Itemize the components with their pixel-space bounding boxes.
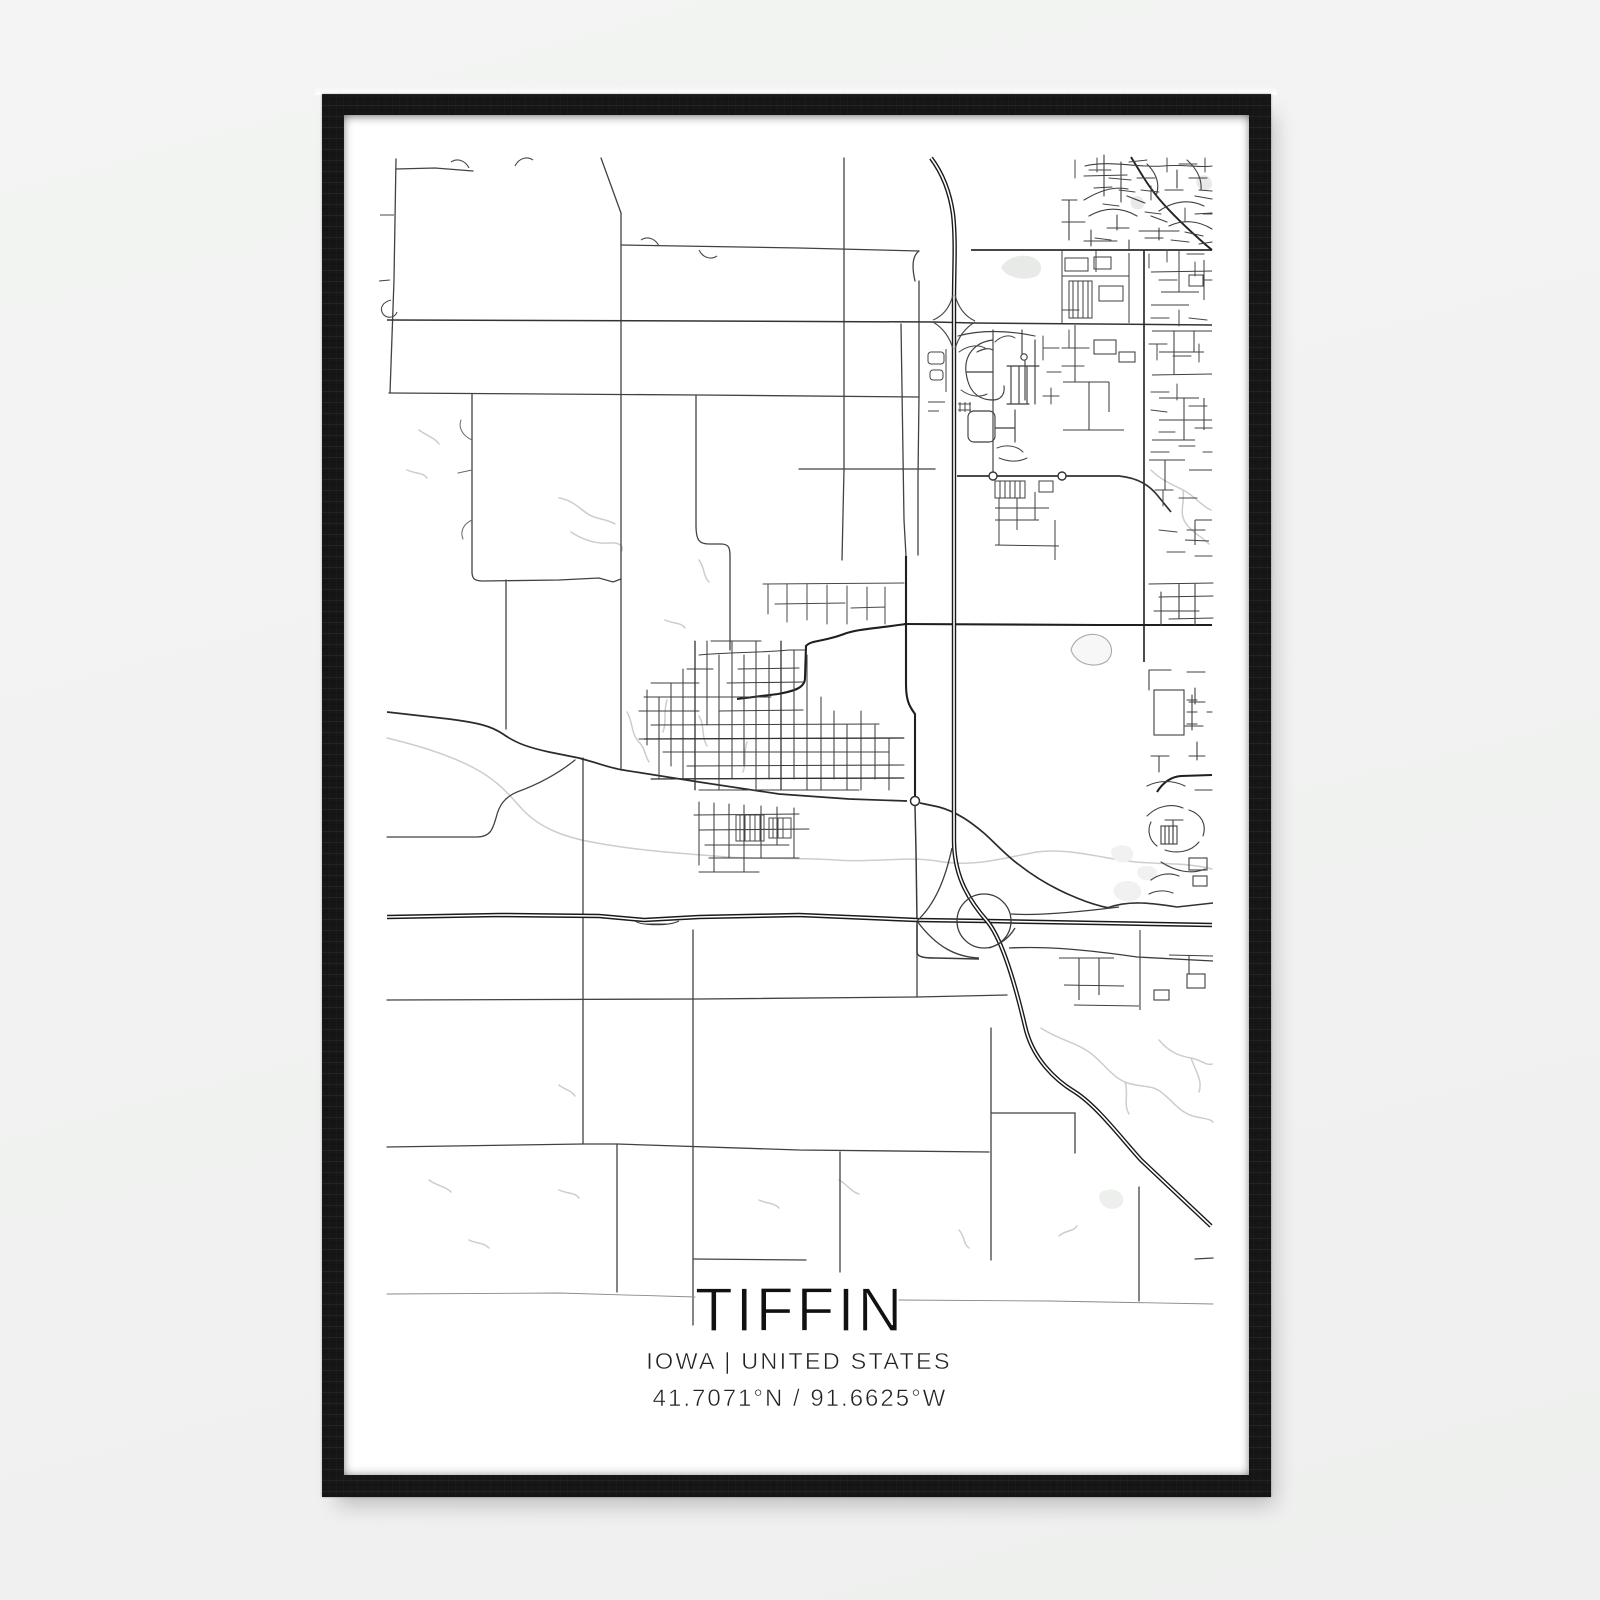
svg-text:41.7071°N / 91.6625°W: 41.7071°N / 91.6625°W [653,1385,948,1412]
svg-text:TIFFIN: TIFFIN [695,1276,905,1345]
svg-text:IOWA | UNITED STATES: IOWA | UNITED STATES [646,1348,952,1374]
